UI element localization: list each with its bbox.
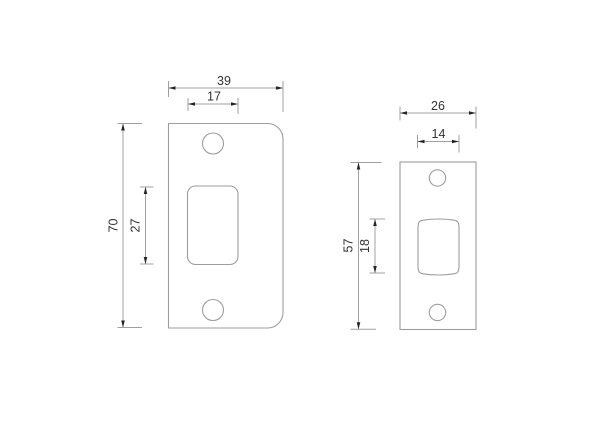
large-plate-slot-height-dimension: 27: [129, 187, 154, 264]
dimension-arrow-right: [452, 140, 459, 144]
small-plate-slot-height-dimension: 18: [358, 219, 385, 273]
small-strike-plate: [400, 162, 476, 330]
small-plate-slot-width-dimension: 14: [418, 127, 460, 153]
dimension-arrow-bottom: [121, 321, 125, 328]
dimension-label: 27: [129, 219, 143, 233]
dimension-arrow-top: [144, 187, 148, 194]
dimension-label: 18: [358, 239, 372, 253]
large-plate-outline: [169, 124, 284, 329]
dimension-label: 17: [207, 90, 221, 104]
dimension-arrow-right: [231, 102, 238, 106]
large-plate-top-screw-hole: [203, 133, 224, 154]
large-plate-bottom-screw-hole: [203, 300, 224, 321]
large-strike-plate: [169, 124, 284, 329]
dimension-label: 14: [432, 127, 446, 141]
dimension-label: 39: [217, 74, 231, 88]
dimension-arrow-bottom: [357, 322, 361, 329]
dimension-label: 70: [107, 219, 121, 233]
dimension-label: 26: [431, 99, 445, 113]
large-plate-width-dimension: 39: [169, 74, 284, 112]
small-plate-bottom-screw-hole: [429, 304, 445, 320]
dimension-arrow-top: [373, 219, 377, 226]
large-plate-latch-opening: [188, 186, 239, 265]
small-plate-top-screw-hole: [429, 170, 445, 186]
drawing-canvas: 39 17 70 27 26: [0, 0, 600, 424]
dimension-arrow-left: [400, 111, 407, 115]
dimension-arrow-right: [469, 111, 476, 115]
dimension-arrow-left: [169, 86, 176, 90]
dimension-label: 57: [342, 239, 356, 253]
dimension-arrow-top: [121, 124, 125, 131]
dimension-arrow-bottom: [144, 257, 148, 264]
small-plate-width-dimension: 26: [400, 99, 476, 129]
small-plate-latch-opening: [418, 219, 459, 275]
dimension-arrow-left: [188, 102, 195, 106]
dimension-arrow-right: [276, 86, 283, 90]
dimension-arrow-bottom: [373, 266, 377, 273]
large-plate-slot-width-dimension: 17: [188, 90, 238, 115]
dimension-arrow-top: [357, 163, 361, 170]
dimension-arrow-left: [418, 140, 425, 144]
strike-plate-technical-drawing: 39 17 70 27 26: [0, 0, 600, 424]
